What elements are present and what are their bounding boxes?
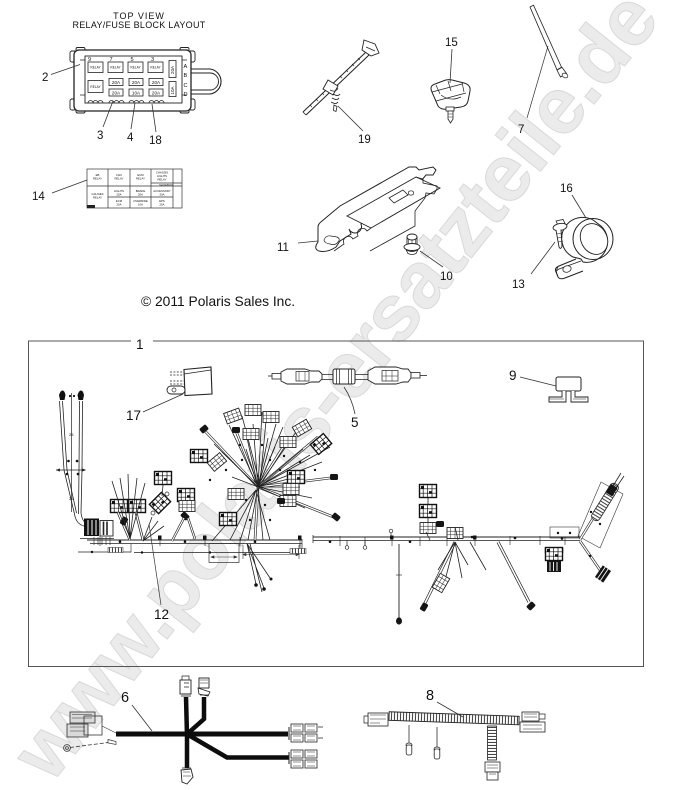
svg-text:20A: 20A [112, 80, 121, 85]
svg-text:RELAY: RELAY [110, 66, 121, 70]
svg-text:RELAY: RELAY [90, 85, 101, 89]
svg-text:D: D [184, 92, 188, 98]
svg-text:10A: 10A [132, 91, 141, 96]
svg-text:SHOEBOX: SHOEBOX [159, 183, 173, 187]
svg-text:RELAY: RELAY [150, 66, 161, 70]
svg-text:20A: 20A [117, 203, 122, 207]
svg-text:9: 9 [88, 57, 91, 63]
svg-text:3: 3 [151, 57, 154, 63]
svg-text:A: A [184, 64, 188, 70]
svg-text:20A: 20A [152, 80, 161, 85]
svg-text:8: 8 [426, 688, 434, 704]
svg-text:RELAY: RELAY [130, 66, 141, 70]
svg-text:RELAY: RELAY [93, 196, 102, 200]
svg-text:26: 26 [69, 496, 74, 501]
svg-text:19: 19 [358, 134, 371, 146]
svg-text:20A: 20A [132, 80, 141, 85]
svg-text:16: 16 [560, 183, 573, 195]
svg-text:RELAY/FUSE BLOCK LAYOUT: RELAY/FUSE BLOCK LAYOUT [72, 20, 205, 30]
svg-text:7: 7 [518, 124, 524, 136]
svg-text:10A: 10A [138, 203, 143, 207]
svg-text:25: 25 [69, 432, 74, 437]
svg-text:10: 10 [440, 271, 453, 283]
svg-text:18: 18 [149, 135, 162, 147]
svg-text:RELAY: RELAY [158, 178, 167, 182]
svg-text:4: 4 [127, 132, 134, 144]
svg-text:RELAY: RELAY [93, 177, 102, 181]
svg-text:20A: 20A [138, 193, 143, 197]
svg-text:15: 15 [445, 37, 458, 49]
svg-text:20A: 20A [160, 203, 165, 207]
svg-text:20A: 20A [170, 65, 175, 74]
svg-text:2: 2 [42, 72, 48, 84]
svg-text:6: 6 [121, 690, 129, 706]
svg-text:5: 5 [131, 57, 134, 63]
svg-text:B: B [184, 73, 188, 79]
svg-text:20A: 20A [117, 193, 122, 197]
svg-text:7: 7 [110, 57, 113, 63]
svg-text:14: 14 [32, 191, 45, 203]
svg-text:C: C [184, 83, 188, 89]
svg-text:© 2011 Polaris Sales Inc.: © 2011 Polaris Sales Inc. [141, 294, 295, 309]
svg-text:11: 11 [277, 242, 289, 254]
svg-text:13: 13 [512, 279, 525, 291]
svg-text:17: 17 [126, 408, 141, 423]
svg-text:20A: 20A [112, 91, 121, 96]
svg-text:12: 12 [154, 607, 169, 622]
svg-text:RELAY: RELAY [136, 177, 145, 181]
svg-text:RELAY: RELAY [115, 177, 124, 181]
svg-text:5: 5 [351, 415, 359, 430]
svg-text:20A: 20A [152, 91, 161, 96]
svg-text:20A: 20A [160, 193, 165, 197]
svg-text:3: 3 [97, 130, 103, 142]
svg-text:10A: 10A [170, 85, 175, 94]
svg-text:RELAY: RELAY [90, 66, 101, 70]
svg-text:1: 1 [136, 337, 144, 352]
svg-text:9: 9 [509, 368, 517, 383]
